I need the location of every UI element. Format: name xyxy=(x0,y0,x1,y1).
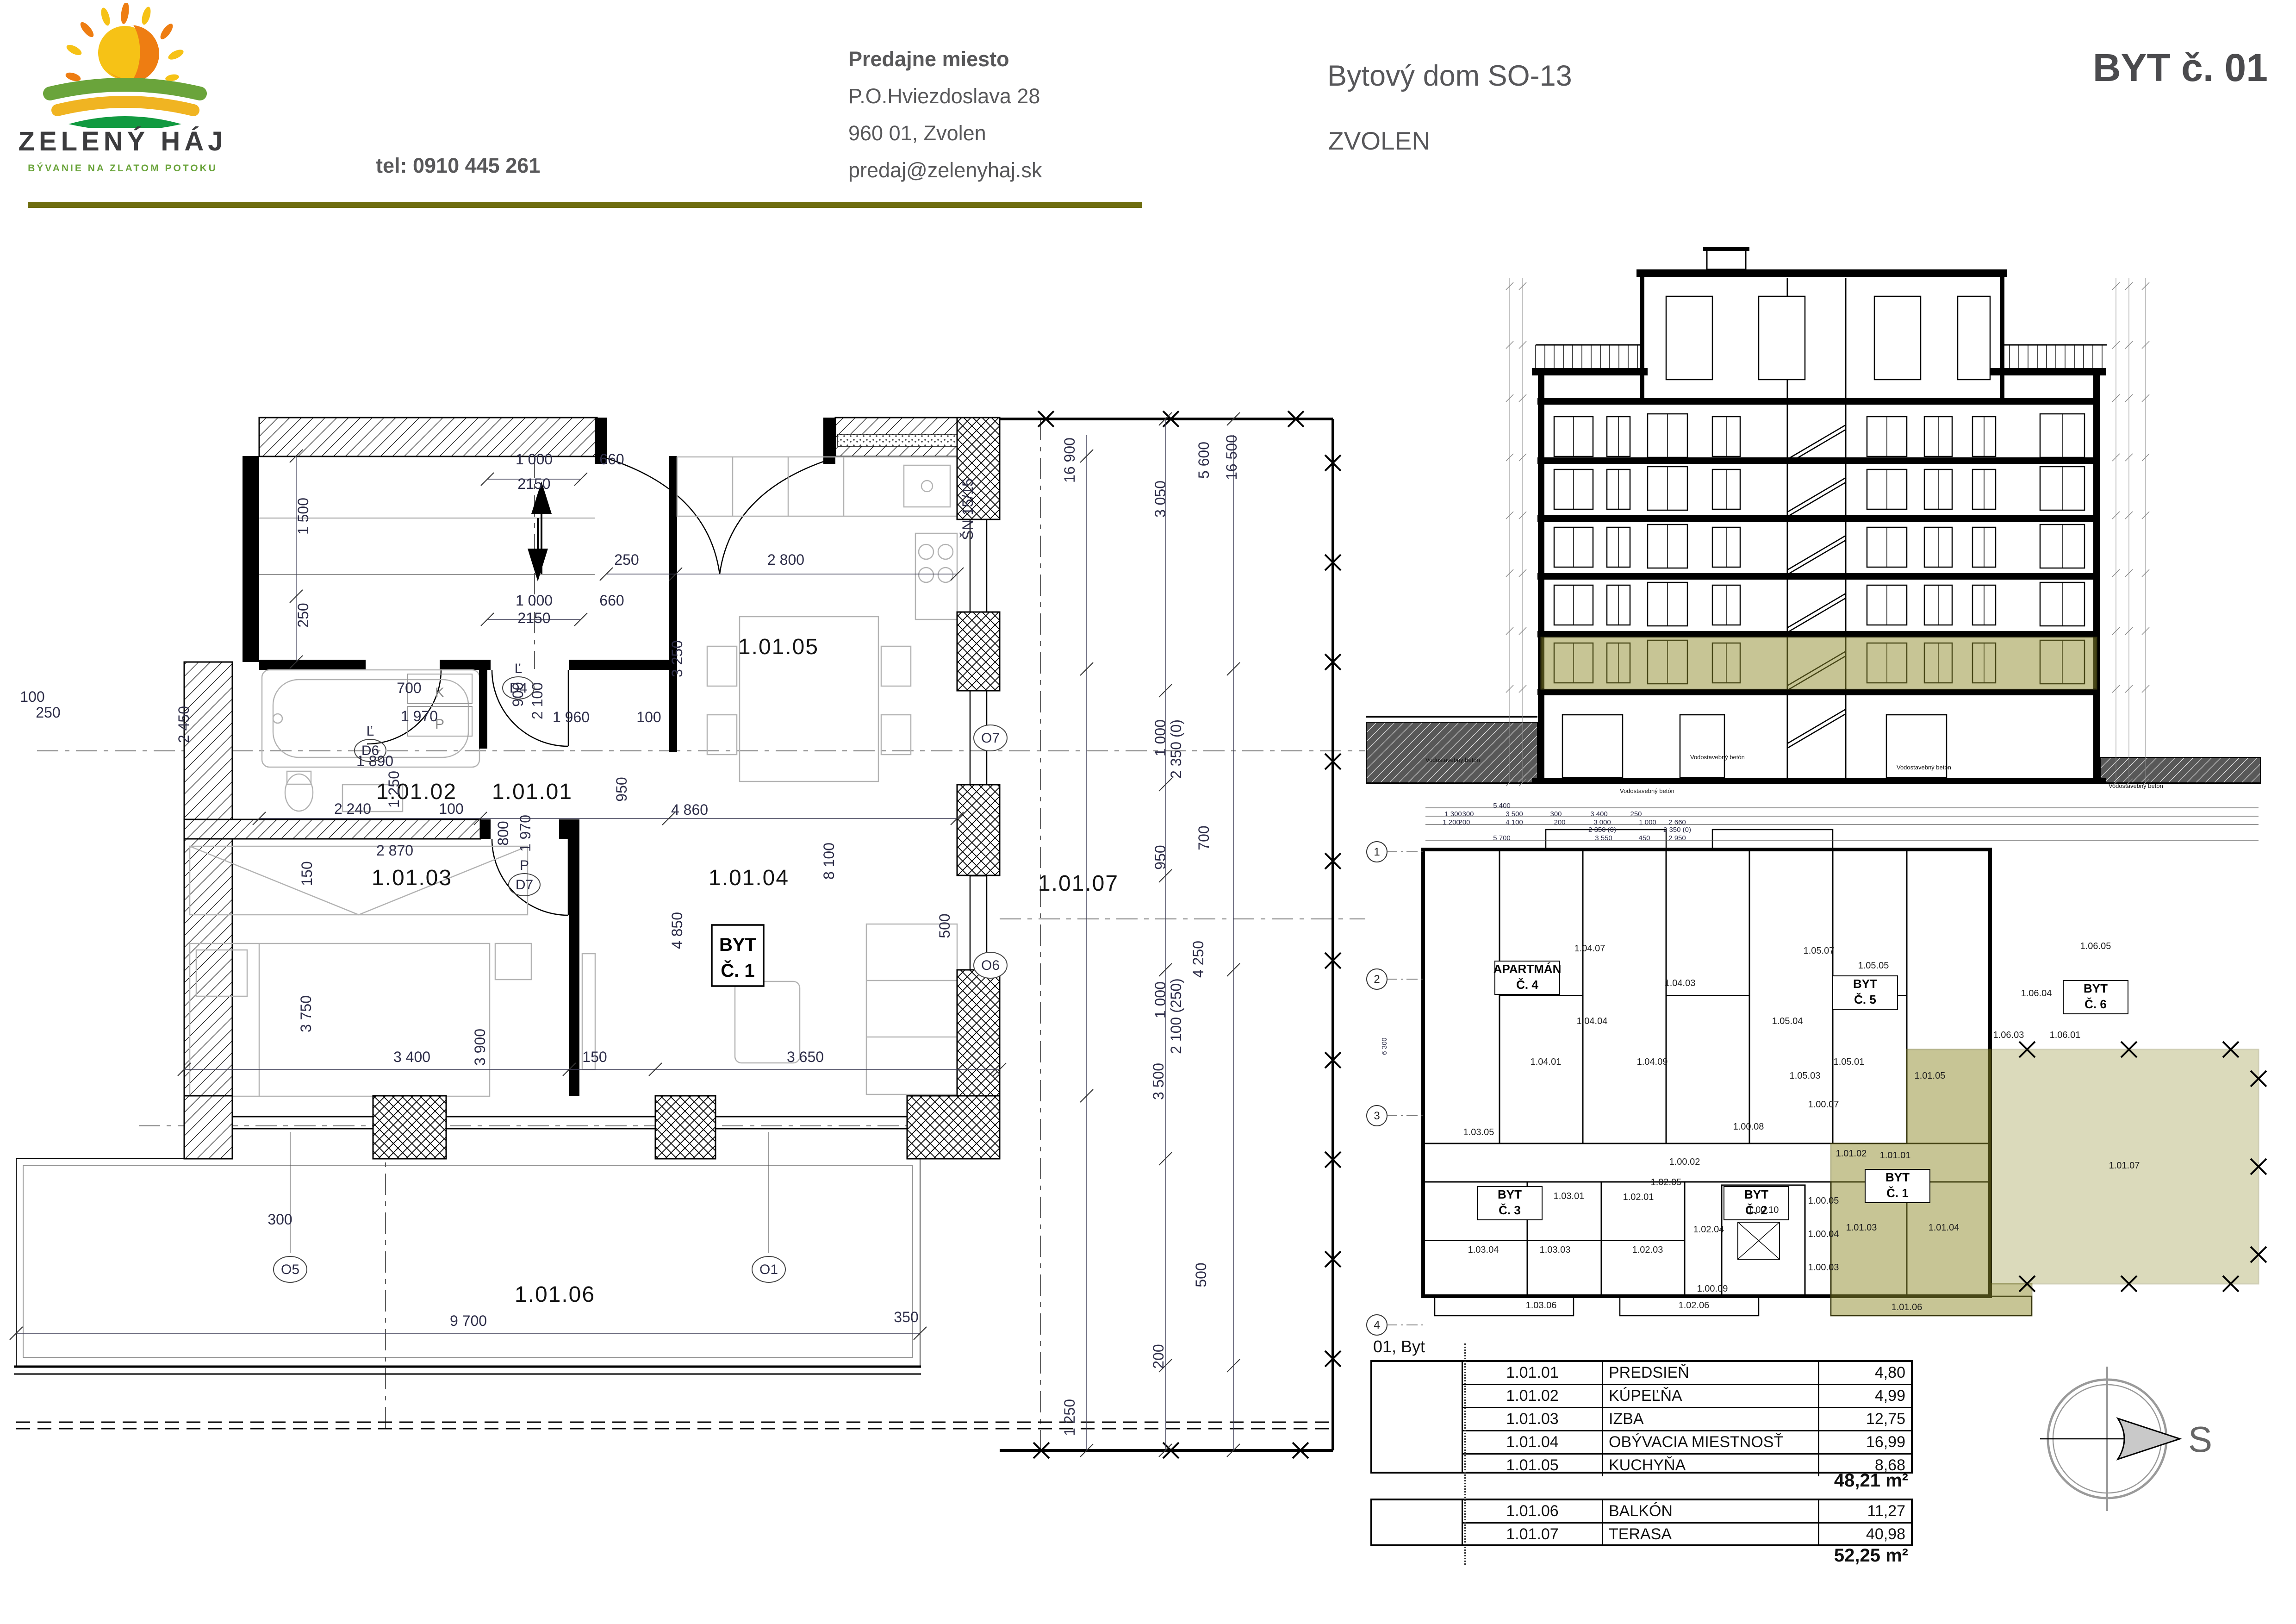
siteplan-room-label: 1.06.03 xyxy=(1993,1030,2024,1040)
room-label: 1.01.07 xyxy=(1038,871,1119,896)
table-row: 1.01.01PREDSIEŇ4,80 xyxy=(1463,1362,1911,1384)
dim-label: 300 xyxy=(268,1211,292,1228)
dim-label: 2 100 (250) xyxy=(1168,978,1184,1054)
door-swing-letter: P xyxy=(520,858,529,873)
siteplan-room-label: 1.06.04 xyxy=(2021,988,2052,999)
table-left-cell xyxy=(1372,1500,1463,1544)
grid-bubble: 3 xyxy=(1374,1110,1380,1122)
siteplan-dim-label: 2 660 xyxy=(1668,818,1686,826)
table-cell-nm: BALKÓN xyxy=(1603,1500,1819,1522)
dim-label: 1 000 xyxy=(1152,719,1169,756)
siteplan-room-label: 1.01.07 xyxy=(2109,1161,2140,1171)
table-dotted-guide xyxy=(1464,1343,1466,1565)
siteplan-dim-label: 300 xyxy=(1462,810,1474,818)
siteplan-room-label: 1.04.03 xyxy=(1665,978,1696,988)
dim-label: 2 350 (0) xyxy=(1168,719,1184,779)
dim-label: 250 xyxy=(295,603,311,627)
siteplan-dim-label: 200 xyxy=(1458,818,1470,826)
dim-label: 1 970 xyxy=(401,708,438,725)
unit-label-line1: BYT xyxy=(1853,977,1877,991)
table-cell-code: 1.01.01 xyxy=(1463,1362,1603,1384)
terrace-fence-marks xyxy=(1033,411,1341,1458)
siteplan-dim-label: 1 300 xyxy=(1444,810,1462,818)
door-swing-letter: Ľ xyxy=(515,661,523,676)
door-tag: D4 xyxy=(510,681,527,696)
dim-label: 3 650 xyxy=(787,1049,824,1065)
siteplan-room-label: 1.05.04 xyxy=(1772,1016,1803,1026)
siteplan-room-label: 1.00.07 xyxy=(1808,1099,1839,1110)
unit-box-line2: Č. 1 xyxy=(721,960,754,981)
siteplan-room-label: 1.05.03 xyxy=(1790,1071,1821,1081)
siteplan-room-label: 1.00.05 xyxy=(1808,1196,1839,1206)
dim-label: 660 xyxy=(599,592,624,609)
table-cell-ar: 16,99 xyxy=(1819,1433,1911,1451)
siteplan-room-label: 1.02.01 xyxy=(1623,1192,1654,1202)
siteplan-dim-label: 1 200 xyxy=(1443,818,1460,826)
door-tag: D7 xyxy=(516,877,533,893)
door-tag: D6 xyxy=(361,743,379,758)
unit-label-line1: BYT xyxy=(1744,1187,1768,1201)
dim-label: 100 xyxy=(20,688,44,705)
dim-label: 250 xyxy=(36,704,60,721)
table-cell-code: 1.01.06 xyxy=(1463,1500,1603,1522)
siteplan-dim-label: 6 300 xyxy=(1381,1037,1388,1055)
area-table-block1: 1.01.01PREDSIEŇ4,801.01.02KÚPEĽŇA4,991.0… xyxy=(1370,1360,1913,1474)
table-group-label: 01, Byt xyxy=(1373,1337,1425,1356)
room-label: 1.01.04 xyxy=(709,866,789,890)
appliance-mark: P xyxy=(435,717,444,732)
section-note: Vodostavebný betón xyxy=(1690,754,1745,761)
unit-label-line2: Č. 3 xyxy=(1499,1203,1521,1217)
table-cell-ar: 4,99 xyxy=(1819,1387,1911,1405)
siteplan-room-label: 1.00.09 xyxy=(1697,1284,1728,1294)
unit-box-line1: BYT xyxy=(719,935,756,955)
section-note: Vodostavebný betón xyxy=(1897,764,1951,771)
table-cell-code: 1.01.04 xyxy=(1463,1431,1603,1453)
section-note: Vodostavebný betón xyxy=(2109,782,2163,789)
table-left-cell xyxy=(1372,1362,1463,1472)
dim-label: 1 500 xyxy=(295,498,311,535)
table-cell-code: 1.01.05 xyxy=(1463,1455,1603,1476)
section-note: Vodostavebný betón xyxy=(1620,787,1674,794)
unit-label-line1: BYT xyxy=(2084,981,2108,995)
dim-label: 200 xyxy=(1150,1344,1167,1368)
dim-label: 250 xyxy=(614,551,639,568)
siteplan-room-label: 1.03.03 xyxy=(1540,1245,1571,1255)
siteplan-room-label: 1.01.04 xyxy=(1929,1223,1960,1233)
siteplan-room-label: 1.00.03 xyxy=(1808,1262,1839,1273)
dim-label: 150 xyxy=(582,1049,607,1065)
dim-label: 500 xyxy=(1193,1262,1209,1287)
table-cell-nm: KUCHYŇA xyxy=(1603,1455,1819,1476)
table-cell-nm: PREDSIEŇ xyxy=(1603,1362,1819,1384)
door-swing-letter: Ľ xyxy=(367,724,374,739)
table-row: 1.01.07TERASA40,98 xyxy=(1463,1522,1911,1545)
table-cell-code: 1.01.07 xyxy=(1463,1524,1603,1545)
dim-label: 3 050 xyxy=(1152,481,1169,518)
room-label: 1.01.06 xyxy=(515,1282,595,1307)
siteplan-room-label: 1.03.06 xyxy=(1526,1300,1557,1311)
drawing-sheet: BYT Č. 1 xyxy=(0,0,2296,1624)
dim-label: 16 500 xyxy=(1223,435,1240,480)
section-stairs xyxy=(1787,425,1846,748)
siteplan-room-label: 1.06.05 xyxy=(2080,941,2111,951)
dim-label: 950 xyxy=(613,777,630,801)
dim-label: 2 450 xyxy=(175,706,192,743)
roof-railings xyxy=(1536,345,2107,368)
siteplan-dim-label: 3 550 xyxy=(1595,834,1612,842)
dim-label: 1 000 xyxy=(1152,981,1169,1018)
dim-label: 1 250 xyxy=(1061,1399,1078,1436)
siteplan-dim-label: 3 000 xyxy=(1593,818,1611,826)
dim-label: 2150 xyxy=(517,610,550,626)
dim-label: 1 970 xyxy=(517,815,534,852)
storey-plan: 1234 APARTMÁNČ. 4BYTČ. 5BYTČ. 6BYTČ. 3BY… xyxy=(1367,802,2266,1335)
dim-label: 3 400 xyxy=(393,1049,430,1065)
window-tag: O7 xyxy=(981,731,1000,746)
north-arrow-icon xyxy=(2118,1418,2180,1459)
dim-label: 1 000 xyxy=(516,451,553,468)
compass: S xyxy=(2040,1367,2212,1511)
window-tags: O7O6O5O1 xyxy=(274,725,1007,1282)
window-tag: O5 xyxy=(281,1262,299,1277)
siteplan-room-label: 1.03.04 xyxy=(1468,1245,1499,1255)
siteplan-dim-label: 5 400 xyxy=(1493,802,1511,810)
table-cell-ar: 12,75 xyxy=(1819,1410,1911,1428)
dim-label: 950 xyxy=(1152,845,1169,869)
unit-label-line1: BYT xyxy=(1885,1170,1910,1184)
table-row: 1.01.02KÚPEĽŇA4,99 xyxy=(1463,1384,1911,1407)
table-cell-nm: OBÝVACIA MIESTNOSŤ xyxy=(1603,1431,1819,1453)
room-label: 1.01.03 xyxy=(372,866,452,890)
grid-bubble: 2 xyxy=(1374,973,1380,986)
building-section: Vodostavebný betónVodostavebný betónVodo… xyxy=(1366,247,2260,794)
room-label: 1.01.01 xyxy=(492,780,572,804)
siteplan-room-label: 1.01.03 xyxy=(1846,1223,1877,1233)
siteplan-room-label: 1.06.01 xyxy=(2050,1030,2081,1040)
grid-bubble: 1 xyxy=(1374,846,1380,858)
dim-label: 4 250 xyxy=(1190,941,1207,978)
section-windows xyxy=(1554,296,2084,684)
section-note: Vodostavebný betón xyxy=(1425,756,1480,763)
section-highlight-floor xyxy=(1541,637,2097,689)
dim-label: 500 xyxy=(936,913,953,938)
window-tag: O1 xyxy=(759,1262,778,1277)
dim-label: 4 860 xyxy=(671,801,708,818)
dim-label: 16 900 xyxy=(1061,437,1078,483)
siteplan-room-label: 1.00.02 xyxy=(1669,1157,1700,1167)
table-cell-code: 1.01.02 xyxy=(1463,1385,1603,1407)
compass-label: S xyxy=(2188,1419,2212,1460)
siteplan-room-label: 1.01.06 xyxy=(1892,1302,1923,1312)
table-total: 52,25 m² xyxy=(1834,1545,1908,1566)
dim-label: ŠN 15/15 xyxy=(959,478,976,540)
dim-label: 3 500 xyxy=(1150,1063,1167,1100)
dim-label: 1 000 xyxy=(516,592,553,609)
siteplan-dim-label: 5 700 xyxy=(1493,834,1511,842)
siteplan-room-label: 1.03.01 xyxy=(1554,1191,1585,1201)
dim-label: 2 240 xyxy=(334,800,371,817)
dim-label: 700 xyxy=(1195,825,1212,850)
dim-label: 100 xyxy=(439,800,463,817)
dim-label: 350 xyxy=(894,1309,918,1325)
dim-label: 800 xyxy=(495,821,511,845)
siteplan-dim-label: 3 400 xyxy=(1590,810,1608,818)
table-cell-ar: 4,80 xyxy=(1819,1364,1911,1382)
window-tag: O6 xyxy=(981,958,1000,973)
siteplan-room-label: 1.05.05 xyxy=(1858,961,1889,971)
dim-label: 2 100 xyxy=(529,682,546,719)
siteplan-room-label: 1.00.04 xyxy=(1808,1229,1839,1239)
siteplan-room-label: 1.04.04 xyxy=(1577,1016,1608,1026)
unit-label-line2: Č. 1 xyxy=(1886,1186,1909,1200)
dim-label: 2150 xyxy=(517,475,550,492)
dim-label: 3 250 xyxy=(669,640,685,677)
siteplan-room-label: 1.04.07 xyxy=(1574,943,1605,954)
siteplan-dim-label: 250 xyxy=(1630,810,1642,818)
table-cell-nm: IZBA xyxy=(1603,1408,1819,1430)
table-cell-nm: TERASA xyxy=(1603,1524,1819,1545)
siteplan-room-label: 1.00.08 xyxy=(1733,1122,1764,1132)
siteplan-dim-label: 3 500 xyxy=(1506,810,1523,818)
dim-label: 8 100 xyxy=(821,843,837,880)
appliance-mark: K xyxy=(435,685,444,700)
siteplan-dim-label: 2 350 (0) xyxy=(1588,826,1616,834)
grid-bubbles: 1234 xyxy=(1367,842,1423,1335)
dim-label: 1 250 xyxy=(386,771,402,808)
dim-label: 2 870 xyxy=(376,842,413,859)
dim-label: 9 700 xyxy=(450,1312,487,1329)
unit-label-line1: APARTMÁN xyxy=(1493,962,1562,976)
table-row: 1.01.03IZBA12,75 xyxy=(1463,1407,1911,1430)
table-subtotal: 48,21 m² xyxy=(1834,1470,1908,1491)
siteplan-dim-label: 4 100 xyxy=(1506,818,1523,826)
table-cell-code: 1.01.03 xyxy=(1463,1408,1603,1430)
table-row: 1.01.06BALKÓN11,27 xyxy=(1463,1500,1911,1522)
dim-label: 660 xyxy=(599,451,624,468)
siteplan-room-label: 1.02.06 xyxy=(1679,1300,1710,1311)
dim-label: 5 600 xyxy=(1195,442,1212,479)
unit-label-line2: Č. 4 xyxy=(1516,978,1538,992)
siteplan-room-label: 1.00.10 xyxy=(1748,1205,1779,1215)
dim-label: 100 xyxy=(636,709,661,725)
unit-label-line2: Č. 5 xyxy=(1854,993,1876,1006)
siteplan-room-label: 1.05.07 xyxy=(1804,946,1835,956)
siteplan-room-label: 1.01.05 xyxy=(1915,1071,1946,1081)
siteplan-room-label: 1.02.05 xyxy=(1651,1177,1682,1187)
siteplan-room-label: 1.02.03 xyxy=(1632,1245,1663,1255)
siteplan-dim-label: 200 xyxy=(1554,818,1565,826)
dim-label: 3 900 xyxy=(472,1029,488,1066)
unit-label-line2: Č. 6 xyxy=(2084,997,2107,1011)
dim-label: 2 800 xyxy=(767,551,804,568)
siteplan-room-label: 1.01.02 xyxy=(1836,1149,1867,1159)
siteplan-room-label: 1.02.04 xyxy=(1693,1224,1724,1235)
apartment-floor-plan: BYT Č. 1 xyxy=(10,411,1365,1458)
dim-label: 150 xyxy=(299,861,315,886)
dim-label: 4 850 xyxy=(669,912,685,949)
siteplan-room-label: 1.04.09 xyxy=(1637,1057,1668,1067)
dim-label: 3 750 xyxy=(298,995,314,1032)
siteplan-room-label: 1.04.01 xyxy=(1531,1057,1562,1067)
grid-bubble: 4 xyxy=(1374,1319,1380,1331)
siteplan-room-label: 1.01.01 xyxy=(1880,1150,1911,1161)
siteplan-dim-label: 450 xyxy=(1638,834,1650,842)
siteplan-dim-label: 2 350 (0) xyxy=(1663,826,1691,834)
siteplan-dim-label: 300 xyxy=(1550,810,1562,818)
dim-label: 1 960 xyxy=(553,709,590,725)
dim-label: 700 xyxy=(397,680,421,696)
room-label: 1.01.05 xyxy=(738,635,819,659)
table-row: 1.01.04OBÝVACIA MIESTNOSŤ16,99 xyxy=(1463,1430,1911,1453)
area-table-block2: 1.01.06BALKÓN11,271.01.07TERASA40,98 xyxy=(1370,1499,1913,1546)
unit-label-line1: BYT xyxy=(1498,1187,1522,1201)
siteplan-room-label: 1.03.05 xyxy=(1463,1127,1494,1137)
siteplan-room-label: 1.05.01 xyxy=(1834,1057,1865,1067)
siteplan-dim-label: 1 000 xyxy=(1639,818,1656,826)
table-cell-nm: KÚPEĽŇA xyxy=(1603,1385,1819,1407)
table-cell-ar: 11,27 xyxy=(1819,1502,1911,1520)
table-cell-ar: 40,98 xyxy=(1819,1525,1911,1543)
siteplan-dim-label: 2 950 xyxy=(1668,834,1686,842)
